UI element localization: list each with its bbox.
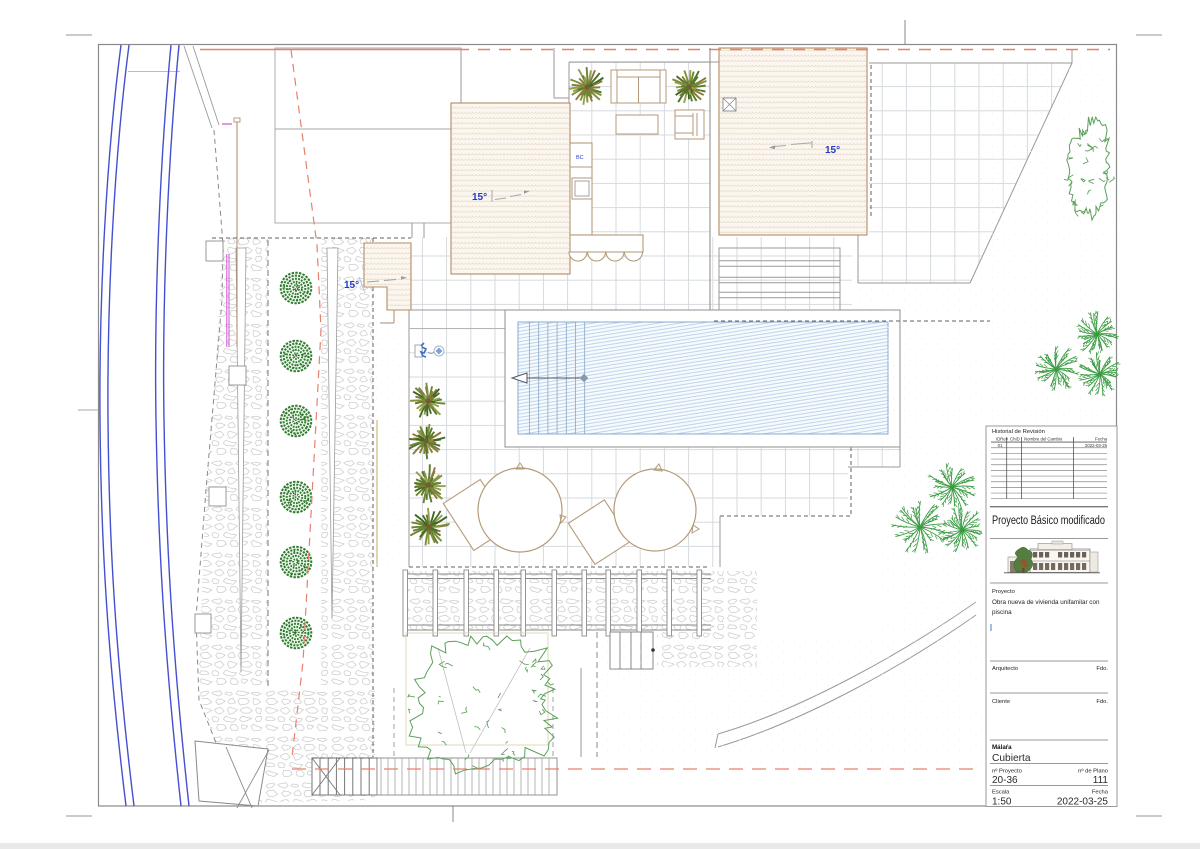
svg-text:BC: BC bbox=[576, 155, 584, 161]
svg-text:Cubierta: Cubierta bbox=[992, 753, 1031, 764]
svg-text:1:50: 1:50 bbox=[992, 797, 1012, 808]
svg-text:111: 111 bbox=[1093, 775, 1109, 786]
svg-text:Nombre del Cambio: Nombre del Cambio bbox=[1024, 437, 1063, 442]
svg-text:Fecha: Fecha bbox=[1095, 437, 1108, 442]
svg-text:15°: 15° bbox=[472, 192, 487, 203]
svg-text:20-36: 20-36 bbox=[992, 775, 1018, 786]
svg-text:Málaŕa: Málaŕa bbox=[992, 744, 1012, 751]
svg-text:01: 01 bbox=[998, 443, 1003, 448]
svg-text:2022-03-25: 2022-03-25 bbox=[1085, 443, 1108, 448]
svg-text:Arquitecto: Arquitecto bbox=[992, 666, 1018, 672]
svg-text:Fdo.: Fdo. bbox=[1096, 666, 1108, 672]
svg-text:nº de Plano: nº de Plano bbox=[1078, 768, 1108, 775]
svg-text:Fecha: Fecha bbox=[1092, 790, 1109, 796]
svg-text:Fdo.: Fdo. bbox=[1096, 699, 1108, 705]
svg-text:15°: 15° bbox=[825, 145, 840, 156]
svg-text:IDRev: IDRev bbox=[996, 437, 1009, 442]
svg-text:nº Proyecto: nº Proyecto bbox=[992, 768, 1022, 775]
svg-text:ChID: ChID bbox=[1010, 437, 1020, 442]
svg-text:piscina: piscina bbox=[992, 609, 1012, 616]
svg-text:15°: 15° bbox=[344, 280, 359, 291]
svg-text:Obra nueva de vivienda unifami: Obra nueva de vivienda unifamilar con bbox=[992, 599, 1100, 606]
svg-text:Escala: Escala bbox=[992, 790, 1010, 796]
svg-text:Cliente: Cliente bbox=[992, 699, 1010, 705]
svg-text:2022-03-25: 2022-03-25 bbox=[1057, 797, 1109, 808]
svg-text:Historial de Revisión: Historial de Revisión bbox=[992, 429, 1045, 435]
svg-text:Proyecto Básico modificado: Proyecto Básico modificado bbox=[992, 515, 1105, 527]
svg-text:Proyecto: Proyecto bbox=[992, 589, 1015, 595]
